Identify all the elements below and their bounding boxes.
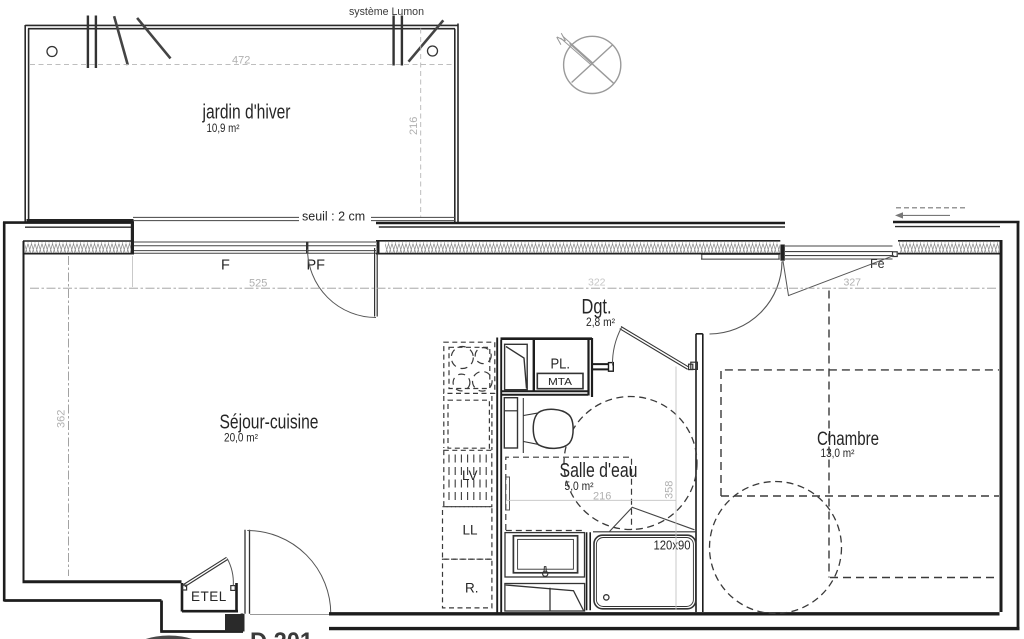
svg-text:MTA: MTA [548, 377, 572, 388]
svg-text:327: 327 [844, 277, 862, 289]
svg-text:LL: LL [463, 523, 479, 538]
svg-text:Dgt.: Dgt. [582, 296, 612, 319]
svg-text:D 201: D 201 [250, 628, 313, 639]
svg-text:PL.: PL. [551, 357, 571, 373]
svg-text:362: 362 [56, 410, 68, 428]
svg-text:F: F [221, 258, 230, 274]
svg-text:120x90: 120x90 [654, 539, 691, 553]
svg-text:10,9 m²: 10,9 m² [207, 123, 240, 135]
svg-text:20,0 m²: 20,0 m² [224, 433, 258, 445]
svg-text:LV: LV [462, 468, 478, 483]
svg-text:seuil : 2 cm: seuil : 2 cm [302, 210, 365, 224]
svg-text:Chambre: Chambre [817, 429, 879, 450]
svg-text:jardin d'hiver: jardin d'hiver [202, 102, 291, 124]
svg-text:13,0 m²: 13,0 m² [821, 448, 855, 460]
svg-text:322: 322 [588, 277, 606, 289]
svg-text:Séjour-cuisine: Séjour-cuisine [220, 412, 319, 434]
svg-text:2,8 m²: 2,8 m² [586, 317, 615, 329]
svg-text:Salle d'eau: Salle d'eau [560, 460, 638, 482]
svg-text:système Lumon: système Lumon [349, 6, 424, 18]
svg-text:472: 472 [232, 55, 250, 67]
svg-text:ETEL: ETEL [191, 589, 227, 604]
svg-text:525: 525 [249, 278, 267, 290]
svg-text:216: 216 [408, 117, 420, 135]
svg-text:358: 358 [664, 481, 676, 499]
svg-text:R.: R. [465, 581, 479, 596]
svg-text:5,0 m²: 5,0 m² [565, 481, 594, 493]
